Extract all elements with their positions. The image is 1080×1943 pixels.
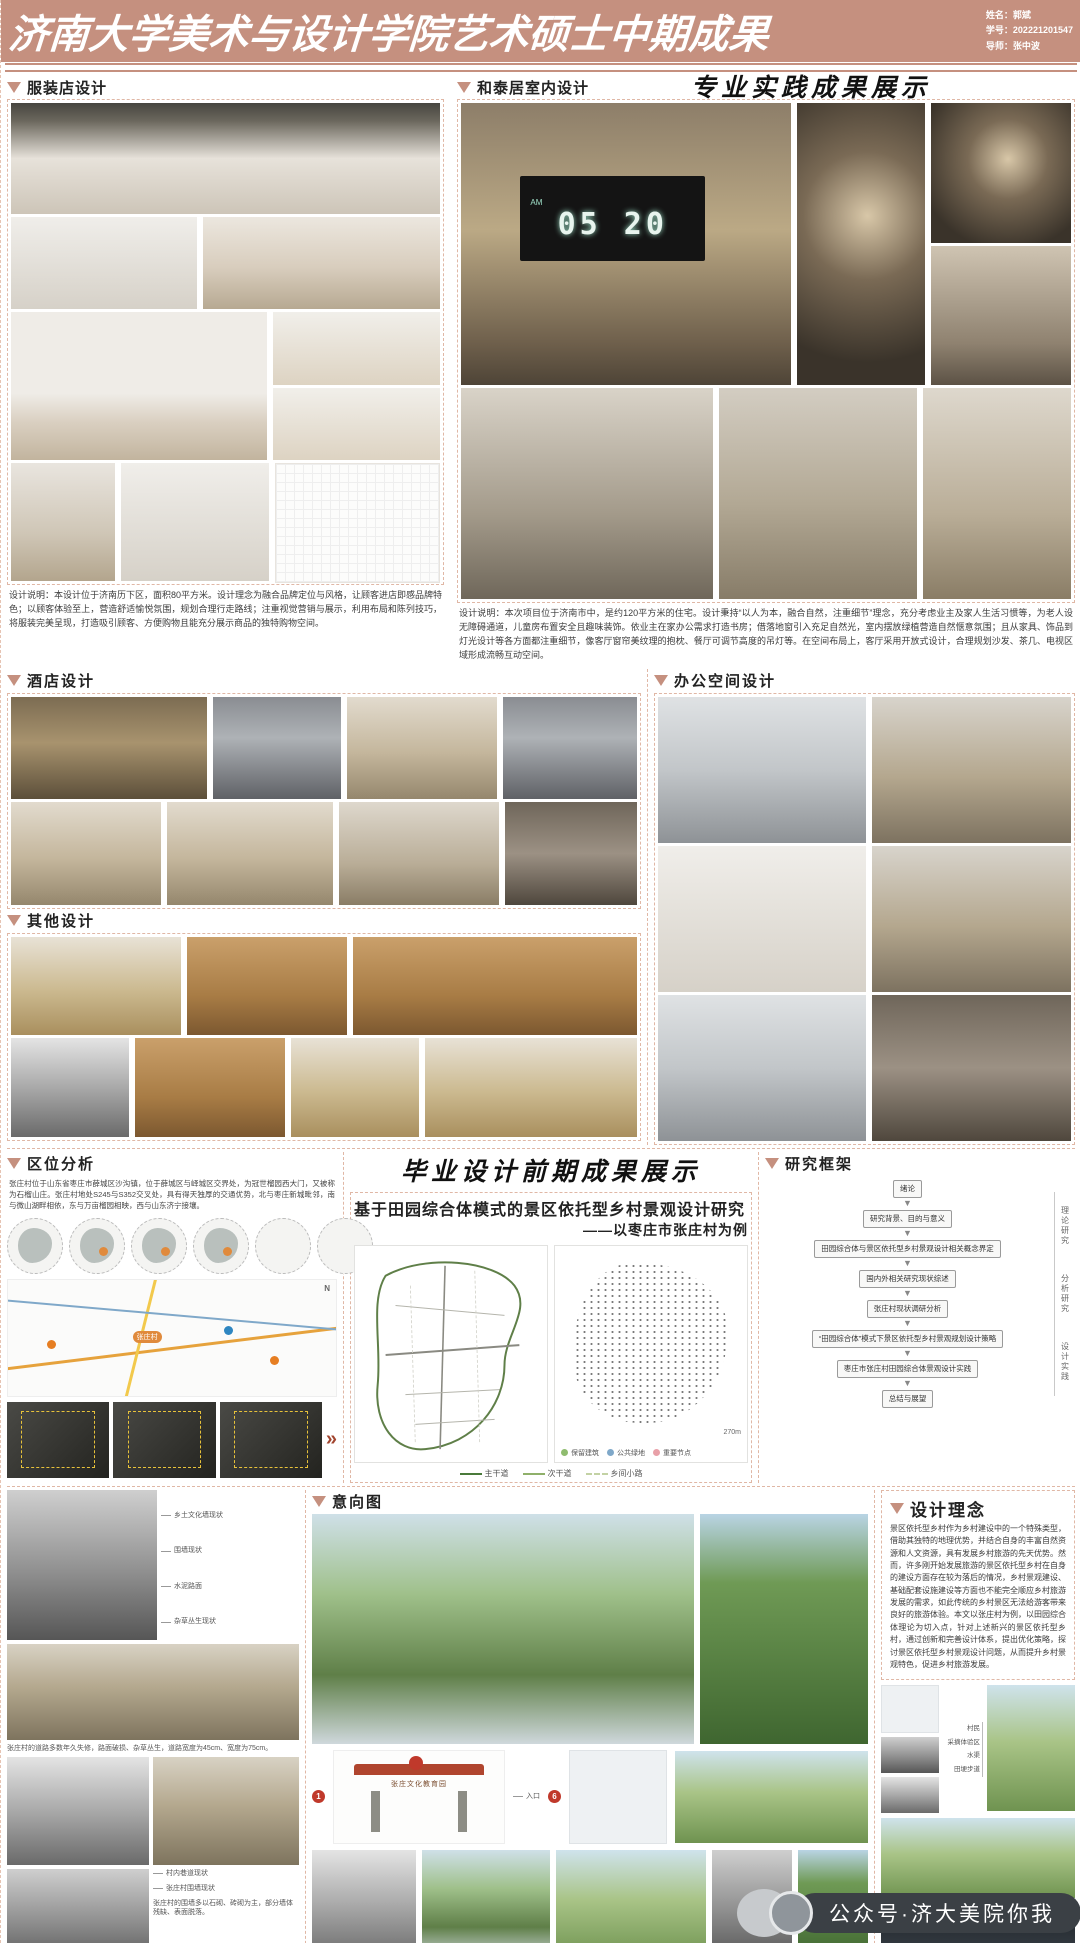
clothing-description: 设计说明：本设计位于济南历下区，面积80平方米。设计理念为融合品牌定位与风格，让…: [7, 585, 444, 635]
row-divider: [7, 1148, 1075, 1149]
photo-office-study: [872, 697, 1071, 843]
photo-hetai-laundry: [461, 388, 713, 599]
arrow-down-icon: ▼: [903, 1379, 912, 1389]
photo-clothing-arch-room: [11, 312, 267, 460]
section-title-clothing: 服装店设计: [27, 77, 107, 98]
village-caption: 张庄村围墙现状: [153, 1884, 299, 1893]
site-legend-item: 保留建筑: [561, 1448, 599, 1458]
framework-stages: 理论研究 分析研究 设计实践: [1054, 1192, 1075, 1396]
photo-hetai-sofa: [923, 388, 1071, 599]
section-title-other: 其他设计: [27, 910, 95, 931]
triangle-icon: [890, 1503, 904, 1514]
node-dot: [47, 1340, 56, 1349]
village-note-1: 张庄村的道路多数年久失修，路面破损、杂草丛生，道路宽度为45cm、宽度为75cm…: [7, 1744, 299, 1753]
road-line: [7, 1324, 337, 1372]
advisor-label: 导师：: [986, 41, 1013, 51]
triangle-icon: [7, 675, 21, 686]
row-divider: [7, 1486, 1075, 1487]
photo-other-plant-shop: [291, 1038, 419, 1137]
flow-box: 研究背景、目的与意义: [863, 1210, 952, 1228]
building-texture: [574, 1263, 728, 1423]
photo-clothing-hall: [11, 217, 197, 309]
village-caption: 乡土文化墙现状: [161, 1511, 299, 1520]
photo-hetai-closet: [931, 103, 1071, 243]
map-shape: [142, 1228, 177, 1263]
section-clothing: 服装店设计: [7, 75, 444, 635]
legend-line-main: [460, 1473, 482, 1475]
gate-pillar: [458, 1791, 467, 1831]
map-shape: [204, 1228, 239, 1263]
photo-clothing-mirror: [11, 463, 115, 581]
gate-sketch: 张庄文化教育园: [333, 1750, 505, 1844]
photo-office-openplan: [658, 846, 866, 992]
photo-other-kindergarten: [425, 1038, 637, 1137]
chevron-right-icon: »: [326, 1428, 337, 1451]
site-legend-item: 公共绿地: [607, 1448, 645, 1458]
concept-description: 景区依托型乡村作为乡村建设中的一个特殊类型，借助其独特的地理优势，并结合自身的丰…: [890, 1521, 1066, 1674]
photo-other-cafe: [11, 1038, 129, 1137]
column-divider: [874, 1490, 875, 1943]
column-divider: [305, 1490, 306, 1943]
satellite-image-3: [220, 1402, 322, 1478]
field-label: 采摘体验区: [943, 1736, 983, 1750]
flow-box: 国内外相关研究现状综述: [859, 1270, 956, 1288]
watermark-logo-icon: [769, 1891, 813, 1935]
marker-badge-1: 1: [312, 1790, 325, 1803]
map-china-icon: [7, 1218, 63, 1274]
photo-clothing-overview: [11, 103, 440, 214]
thesis-title: 基于田园综合体模式的景区依托型乡村景观设计研究: [354, 1196, 748, 1220]
section-thesis: 毕业设计前期成果展示 基于田园综合体模式的景区依托型乡村景观设计研究 ——以枣庄…: [350, 1152, 752, 1483]
triangle-icon: [7, 915, 21, 926]
student-id: 202221201547: [1013, 25, 1073, 35]
photo-other-bookstore-1: [187, 937, 347, 1036]
stage-label: 设计实践: [1060, 1342, 1071, 1382]
rendering-walkway: [556, 1850, 706, 1943]
road-legend: 主干道 次干道 乡间小路: [354, 1468, 748, 1479]
road-network-map: [354, 1245, 548, 1463]
section-concept: 设计理念 景区依托型乡村作为乡村建设中的一个特殊类型，借助其独特的地理优势，并结…: [881, 1490, 1075, 1943]
map-xuecheng-icon: [193, 1218, 249, 1274]
map-shandong-icon: [69, 1218, 125, 1274]
left-column: 酒店设计: [7, 669, 641, 1145]
gate-text: 张庄文化教育园: [334, 1779, 504, 1789]
photo-clothing-seating: [121, 463, 269, 581]
photo-office-meeting: [872, 846, 1071, 992]
village-label: 张庄村: [133, 1331, 162, 1343]
watermark: 公众号·济大美院你我: [737, 1889, 1080, 1937]
compass-icon: N: [324, 1284, 330, 1293]
triangle-icon: [457, 82, 471, 93]
photo-office-lounge: [872, 995, 1071, 1141]
flow-box: “田园综合体”模式下景区依托型乡村景观规划设计策略: [812, 1330, 1004, 1348]
photo-clothing-shoe-display: [273, 312, 440, 385]
flow-box: 总结与展望: [882, 1390, 934, 1408]
photo-village-alley-2: [7, 1757, 149, 1865]
site-legend-item: 重要节点: [653, 1448, 691, 1458]
road-legend-item: 次干道: [523, 1468, 572, 1479]
arrow-down-icon: ▼: [903, 1199, 912, 1209]
arrow-down-icon: ▼: [903, 1289, 912, 1299]
field-label: 水渠: [943, 1749, 983, 1763]
photo-hetai-desk: [931, 246, 1071, 386]
photo-hotel-room-3: [167, 802, 333, 905]
stage-label: 理论研究: [1060, 1206, 1071, 1246]
road-legend-item: 乡间小路: [586, 1468, 643, 1479]
marker-badge-6: 6: [548, 1790, 561, 1803]
arrow-down-icon: ▼: [903, 1319, 912, 1329]
legend-line-secondary: [523, 1473, 545, 1475]
entry-label: 入口: [513, 1792, 540, 1801]
rendering-tree-lane: [700, 1514, 868, 1744]
triangle-icon: [765, 1158, 779, 1169]
photo-hotel-banquet: [11, 697, 207, 800]
student-info: 姓名：郭斌 学号：202221201547 导师：张中波: [986, 8, 1073, 54]
photo-hotel-room-2: [11, 802, 161, 905]
triangle-icon: [654, 675, 668, 686]
building-footprint-map: 270m 保留建筑 公共绿地 重要节点: [554, 1245, 748, 1463]
village-caption: 围墙现状: [161, 1546, 299, 1555]
column-divider: [343, 1152, 344, 1483]
graduation-subtitle: 毕业设计前期成果展示: [350, 1152, 752, 1188]
photo-village-stone-wall: [7, 1644, 299, 1740]
student-name: 郭斌: [1013, 10, 1031, 20]
node-dot: [224, 1326, 233, 1335]
field-label: 田埂步道: [943, 1763, 983, 1777]
photo-orchard-circle: [255, 1218, 311, 1274]
scale-label: 270m: [723, 1429, 741, 1436]
section-hotel: 酒店设计: [7, 669, 641, 909]
node-dot: [270, 1356, 279, 1365]
floor-plan-clothing: [275, 463, 440, 583]
stage-label: 分析研究: [1060, 1274, 1071, 1314]
photo-office-exec-2: [658, 995, 866, 1141]
photo-hetai-wardrobe-glow: [797, 103, 925, 385]
photo-clothing-bag-display: [273, 388, 440, 461]
village-caption: 杂草丛生现状: [161, 1617, 299, 1626]
section-title-hotel: 酒店设计: [27, 670, 95, 691]
section-title-framework: 研究框架: [785, 1153, 853, 1174]
rendering-field-path: [987, 1685, 1075, 1811]
concept-bw-photo-2: [881, 1777, 939, 1813]
photo-other-shopfront: [135, 1038, 285, 1137]
framework-flowchart: 绪论▼ 研究背景、目的与意义▼ 田园综合体与景区依托型乡村景观设计相关概念界定▼…: [765, 1180, 1050, 1408]
arrow-down-icon: ▼: [903, 1259, 912, 1269]
concept-bw-photo-1: [881, 1737, 939, 1773]
photo-village-wall-flowers: [153, 1757, 299, 1865]
legend-dot-pink: [653, 1449, 660, 1456]
practice-subtitle: 专业实践成果展示: [591, 68, 1031, 104]
thesis-subtitle: ——以枣庄市张庄村为例: [354, 1220, 748, 1240]
legend-dot-blue: [607, 1449, 614, 1456]
clock-am-label: AM: [530, 198, 542, 207]
photo-office-exec-1: [658, 697, 866, 843]
village-caption: 水泥路面: [161, 1582, 299, 1591]
photo-reference-1: [312, 1850, 416, 1943]
flow-box: 张庄村现状调研分析: [867, 1300, 949, 1318]
red-seal-icon: [409, 1756, 423, 1770]
section-intention: 意向图 1 张庄文化教育园 入口 6: [312, 1490, 868, 1943]
rendering-gate-view: [422, 1850, 550, 1943]
hetai-description: 设计说明：本次项目位于济南市中，是约120平方米的住宅。设计秉持“以人为本，融合…: [457, 603, 1075, 667]
tv-clock: AM 05 20: [520, 176, 705, 261]
rendering-park-path: [312, 1514, 694, 1744]
poster-title: 济南大学美术与设计学院艺术硕士中期成果: [7, 2, 988, 60]
poster-header: 济南大学美术与设计学院艺术硕士中期成果 姓名：郭斌 学号：20222120154…: [1, 0, 1080, 62]
river-line: [7, 1299, 337, 1332]
section-title-office: 办公空间设计: [674, 670, 776, 691]
legend-dot-green: [561, 1449, 568, 1456]
name-label: 姓名：: [986, 10, 1013, 20]
section-framework: 研究框架 绪论▼ 研究背景、目的与意义▼ 田园综合体与景区依托型乡村景观设计相关…: [765, 1152, 1075, 1483]
photo-hotel-corridor: [505, 802, 637, 905]
photo-village-lane: [7, 1869, 149, 1943]
map-shape: [18, 1228, 53, 1263]
watermark-text: 公众号·济大美院你我: [795, 1893, 1080, 1933]
gate-pillar: [371, 1791, 380, 1831]
location-mini-map: [569, 1750, 667, 1844]
flow-box: 枣庄市张庄村田园综合体景观设计实践: [837, 1360, 979, 1378]
column-divider: [758, 1152, 759, 1483]
arrow-down-icon: ▼: [903, 1349, 912, 1359]
triangle-icon: [7, 82, 21, 93]
satellite-image-2: [113, 1402, 215, 1478]
section-title-concept: 设计理念: [910, 1496, 986, 1521]
photo-hotel-suite: [339, 802, 499, 905]
section-title-intention: 意向图: [332, 1491, 383, 1512]
photo-hotel-lobby: [213, 697, 341, 800]
village-note-2: 张庄村的围墙多以石砌、砖砌为主，部分墙体残缺、表面脱落。: [153, 1899, 299, 1917]
rendering-plaza: [675, 1751, 868, 1843]
photo-hetai-livingroom: AM 05 20: [461, 103, 791, 385]
section-office: 办公空间设计: [654, 669, 1075, 1145]
section-title-location: 区位分析: [27, 1153, 95, 1174]
triangle-icon: [7, 1158, 21, 1169]
photo-hotel-lounge: [503, 697, 637, 800]
sid-label: 学号：: [986, 25, 1013, 35]
traffic-analysis-diagram: N 张庄村: [7, 1279, 337, 1397]
column-divider: [647, 669, 648, 1145]
legend-line-path: [586, 1473, 608, 1475]
satellite-image-1: [7, 1402, 109, 1478]
photo-village-alley-1: [7, 1490, 157, 1640]
photo-other-reading-room: [11, 937, 181, 1036]
clock-time: 05 20: [558, 207, 668, 242]
photo-other-bookstore-2: [353, 937, 637, 1036]
photo-clothing-shelves: [203, 217, 440, 309]
location-description: 张庄村位于山东省枣庄市薛城区沙沟镇，位于薛城区与峄城区交界处，为冠世榴园西大门，…: [7, 1176, 337, 1214]
section-other: 其他设计: [7, 909, 641, 1141]
map-zaozhuang-icon: [131, 1218, 187, 1274]
map-shape: [80, 1228, 115, 1263]
poster: 济南大学美术与设计学院艺术硕士中期成果 姓名：郭斌 学号：20222120154…: [0, 0, 1080, 1943]
field-label: 村民: [943, 1722, 983, 1736]
rendering-country-road: [881, 1818, 1075, 1898]
triangle-icon: [312, 1496, 326, 1507]
section-village-status: 乡土文化墙现状 围墙现状 水泥路面 杂草丛生现状 张庄村的道路多数年久失修，路面…: [7, 1490, 299, 1943]
section-title-hetai: 和泰居室内设计: [477, 77, 589, 98]
road-map-drawing: [355, 1246, 547, 1462]
arrow-down-icon: ▼: [903, 1229, 912, 1239]
flow-box: 绪论: [893, 1180, 922, 1198]
photo-hetai-kitchen: [719, 388, 917, 599]
section-location: 区位分析 张庄村位于山东省枣庄市薛城区沙沟镇，位于薛城区与峄城区交界处，为冠世榴…: [7, 1152, 337, 1483]
flow-box: 田园综合体与景区依托型乡村景观设计相关概念界定: [814, 1240, 1001, 1258]
photo-hotel-room-1: [347, 697, 497, 800]
village-caption: 村内巷道现状: [153, 1869, 299, 1878]
advisor-name: 张中波: [1013, 41, 1040, 51]
concept-mini-map: [881, 1685, 939, 1733]
section-hetai: 和泰居室内设计 AM 05 20: [457, 75, 1075, 667]
road-legend-item: 主干道: [460, 1468, 509, 1479]
